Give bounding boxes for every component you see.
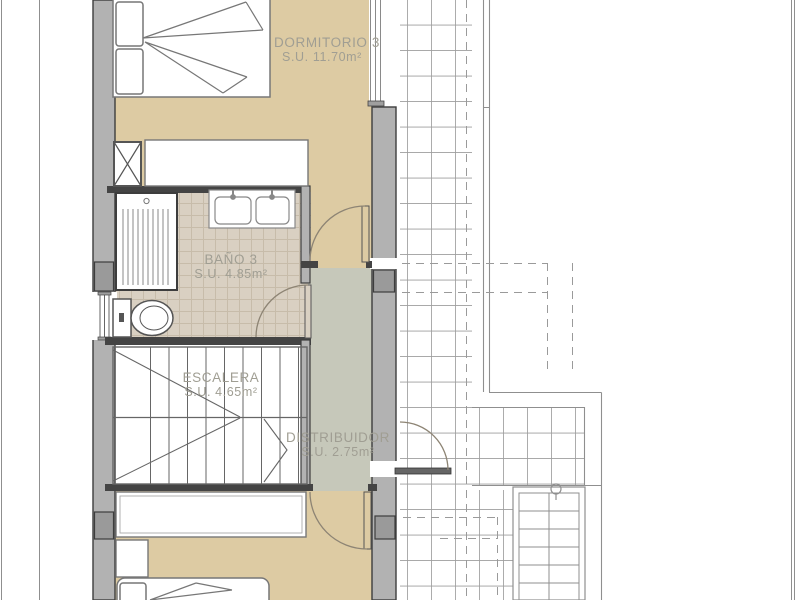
wall-pier xyxy=(95,262,114,291)
shaft-box xyxy=(114,142,141,186)
wall-pier xyxy=(95,512,114,539)
toilet xyxy=(113,299,173,337)
escalera-south-wall xyxy=(105,484,313,491)
terrace xyxy=(400,0,602,600)
double-sink-counter xyxy=(209,190,295,228)
bed-double xyxy=(117,578,269,600)
sink-basin xyxy=(256,197,289,224)
label-dormitorio-3: DORMITORIO 3 xyxy=(274,35,380,50)
pillow xyxy=(116,2,143,46)
bathroom-east-wall xyxy=(301,186,310,283)
label-distribuidor: DISTRIBUIDOR xyxy=(286,430,390,445)
wall-pier xyxy=(374,270,395,292)
bed-double xyxy=(113,0,270,97)
exterior-stair xyxy=(513,484,585,600)
wardrobe xyxy=(145,140,308,186)
wardrobe xyxy=(116,492,306,537)
shower-tray xyxy=(116,193,177,290)
label-bano-3: BAÑO 3 xyxy=(204,252,257,267)
label-escalera: ESCALERA xyxy=(183,370,260,385)
bathroom-south-wall xyxy=(105,337,311,345)
nightstand xyxy=(116,540,148,577)
left-boundary-lines xyxy=(2,0,40,600)
wall-pier xyxy=(375,516,395,539)
pillow xyxy=(116,49,143,94)
area-bano-3: S.U. 4.85m² xyxy=(194,267,267,281)
pillow xyxy=(120,583,146,600)
floor-plan-page: DORMITORIO 3 S.U. 11.70m² BAÑO 3 S.U. 4.… xyxy=(0,0,800,600)
area-distribuidor: S.U. 2.75m² xyxy=(301,445,374,459)
sink-basin xyxy=(215,197,251,224)
right-wall-niche xyxy=(370,258,398,269)
bathroom-window xyxy=(98,292,111,340)
terrace-tiles-strip xyxy=(400,0,472,490)
terrace-door-opening xyxy=(370,461,398,477)
dormitorio2-door-jamb xyxy=(368,484,377,491)
terrace-tiles-lower xyxy=(472,407,584,485)
area-dormitorio-3: S.U. 11.70m² xyxy=(282,50,362,64)
area-escalera: S.U. 4.65m² xyxy=(184,385,257,399)
right-boundary-lines xyxy=(792,0,795,600)
terrace-parapet-lines xyxy=(483,0,490,392)
dormitorio-door-jamb xyxy=(301,261,318,268)
escalera-east-wall xyxy=(301,340,310,490)
floor-plan-drawing: DORMITORIO 3 S.U. 11.70m² BAÑO 3 S.U. 4.… xyxy=(0,0,800,600)
terrace-tiles-bottom xyxy=(400,490,513,600)
dormitorio-window xyxy=(368,0,384,106)
